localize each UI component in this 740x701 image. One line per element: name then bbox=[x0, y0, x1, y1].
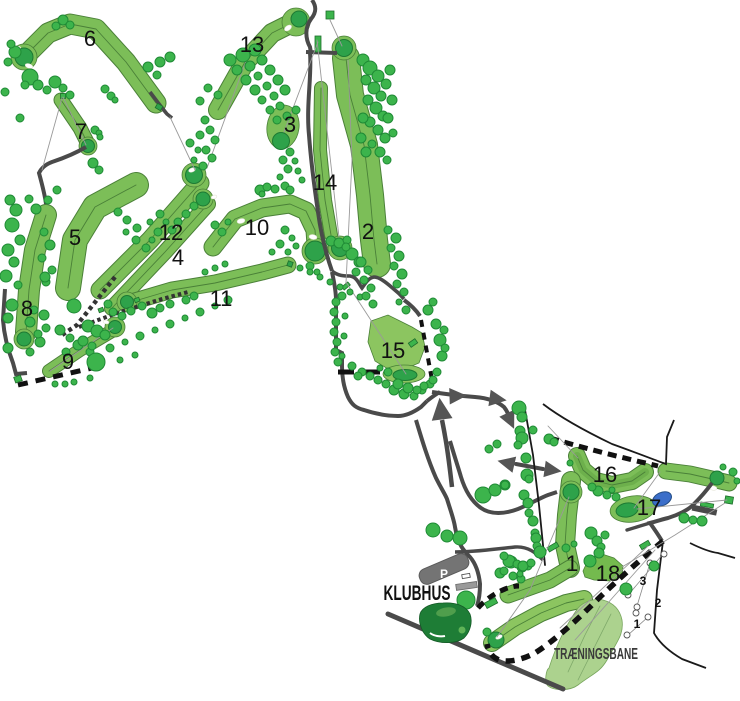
svg-text:2: 2 bbox=[362, 219, 374, 244]
svg-text:18: 18 bbox=[596, 561, 620, 586]
svg-text:11: 11 bbox=[210, 286, 233, 311]
svg-text:16: 16 bbox=[593, 462, 617, 487]
svg-text:8: 8 bbox=[21, 296, 33, 321]
svg-text:3: 3 bbox=[640, 574, 647, 588]
svg-text:17: 17 bbox=[637, 495, 661, 520]
svg-text:7: 7 bbox=[75, 119, 87, 144]
svg-text:5: 5 bbox=[69, 225, 81, 250]
svg-text:1: 1 bbox=[634, 617, 641, 631]
svg-text:4: 4 bbox=[172, 245, 184, 270]
svg-text:13: 13 bbox=[240, 32, 264, 57]
svg-text:12: 12 bbox=[159, 220, 183, 245]
svg-text:P: P bbox=[440, 567, 448, 581]
svg-text:2: 2 bbox=[655, 596, 662, 610]
svg-text:14: 14 bbox=[313, 170, 337, 195]
svg-text:1: 1 bbox=[566, 551, 578, 576]
svg-text:10: 10 bbox=[245, 215, 269, 240]
svg-text:KLUBHUS: KLUBHUS bbox=[384, 582, 451, 605]
svg-text:6: 6 bbox=[84, 26, 96, 51]
svg-text:TRÆNINGSBANE: TRÆNINGSBANE bbox=[554, 646, 638, 663]
svg-text:3: 3 bbox=[284, 112, 296, 137]
svg-text:15: 15 bbox=[381, 338, 405, 363]
svg-text:9: 9 bbox=[62, 349, 74, 374]
